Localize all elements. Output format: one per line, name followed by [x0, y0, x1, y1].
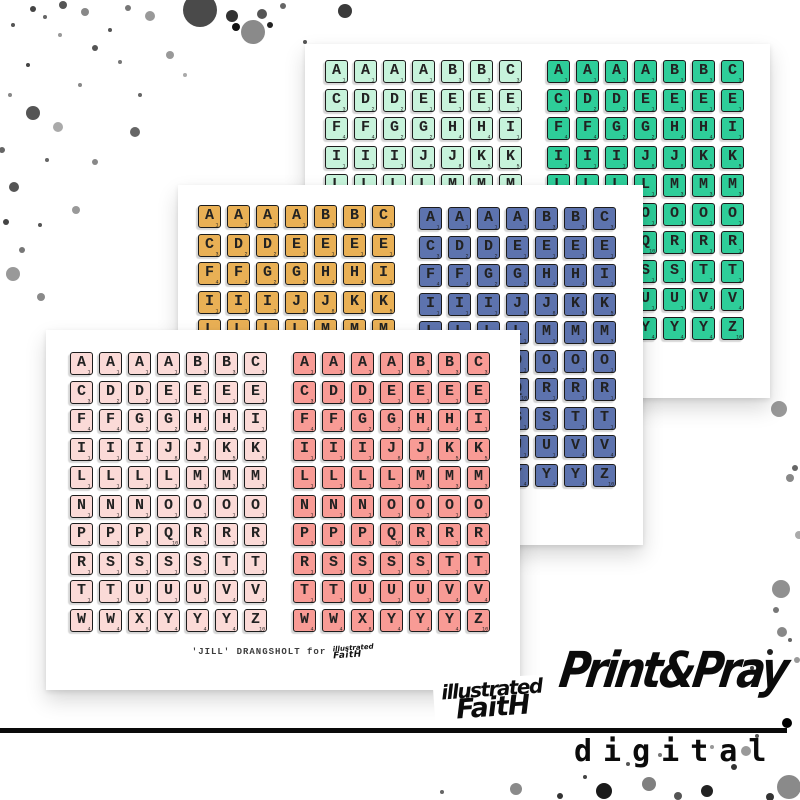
tile-point-value: 4 — [216, 279, 219, 285]
tile-point-value: 4 — [88, 426, 91, 432]
letter-tile-p: P3 — [70, 523, 93, 546]
tile-point-value: 1 — [488, 106, 491, 112]
tile-point-value: 1 — [204, 597, 207, 603]
letter-tile-v: V4 — [564, 435, 587, 458]
letter-tile-s: S1 — [409, 552, 432, 575]
letter-tile-k: K5 — [499, 146, 522, 169]
ink-splatter-dot — [642, 777, 656, 791]
tile-point-value: 1 — [739, 134, 742, 140]
tile-point-value: 1 — [245, 222, 248, 228]
letter-tile-t: T1 — [564, 407, 587, 430]
tile-point-value: 1 — [524, 452, 527, 458]
tile-point-value: 3 — [456, 483, 459, 489]
tile-point-value: 1 — [117, 597, 120, 603]
tile-point-value: 1 — [88, 569, 91, 575]
tile-point-value: 1 — [553, 367, 556, 373]
tile-point-value: 1 — [652, 77, 655, 83]
tile-point-value: 2 — [398, 426, 401, 432]
ink-splatter-dot — [510, 783, 522, 795]
tile-point-value: 8 — [332, 308, 335, 314]
letter-tile-j: J8 — [535, 293, 558, 316]
letter-tile-c: C3 — [419, 236, 442, 259]
letter-tile-c: C3 — [721, 60, 744, 83]
letter-tile-i: I1 — [293, 438, 316, 461]
tile-point-value: 1 — [274, 308, 277, 314]
letter-tile-y: Y4 — [409, 609, 432, 632]
tile-point-value: 1 — [311, 483, 314, 489]
ink-splatter-dot — [19, 247, 25, 253]
tile-point-value: 1 — [372, 77, 375, 83]
tile-point-value: 1 — [175, 483, 178, 489]
tile-point-value: 1 — [117, 455, 120, 461]
tile-point-value: 3 — [517, 77, 520, 83]
tile-point-value: 3 — [311, 398, 314, 404]
tile-point-value: 3 — [146, 540, 149, 546]
tile-point-value: 3 — [739, 191, 742, 197]
letter-tile-i: I1 — [322, 438, 345, 461]
tile-point-value: 3 — [262, 483, 265, 489]
tile-point-value: 1 — [582, 395, 585, 401]
letter-tile-y: Y4 — [535, 464, 558, 487]
tile-point-value: 8 — [427, 455, 430, 461]
tile-point-value: 1 — [175, 512, 178, 518]
tile-point-value: 10 — [395, 540, 401, 546]
letter-tile-r: R1 — [70, 552, 93, 575]
ink-splatter-dot — [38, 223, 42, 227]
letter-tile-m: M3 — [692, 174, 715, 197]
letter-tile-v: V4 — [721, 288, 744, 311]
ink-splatter-dot — [792, 465, 798, 471]
letter-tile-q: Q10 — [380, 523, 403, 546]
tile-point-value: 1 — [485, 512, 488, 518]
letter-tile-n: N1 — [322, 495, 345, 518]
tile-point-value: 1 — [611, 395, 614, 401]
tile-point-value: 1 — [117, 369, 120, 375]
tile-point-value: 4 — [175, 626, 178, 632]
tile-point-value: 1 — [524, 424, 527, 430]
ink-splatter-dot — [766, 793, 774, 800]
tile-point-value: 8 — [430, 163, 433, 169]
illustrated-faith-mini-logo: illustrated FaitH — [333, 645, 375, 661]
ink-splatter-dot — [241, 20, 265, 44]
tile-point-value: 1 — [495, 224, 498, 230]
tile-point-value: 1 — [652, 191, 655, 197]
tile-point-value: 1 — [398, 512, 401, 518]
letter-tile-e: E1 — [535, 236, 558, 259]
tile-point-value: 1 — [710, 277, 713, 283]
tile-point-value: 10 — [736, 334, 742, 340]
letter-tile-a: A1 — [448, 207, 471, 230]
letter-tile-e: E1 — [663, 89, 686, 112]
letter-tile-h: H4 — [409, 409, 432, 432]
tile-point-value: 3 — [204, 369, 207, 375]
tile-point-value: 3 — [582, 224, 585, 230]
letter-tile-o: O1 — [438, 495, 461, 518]
tile-point-value: 10 — [172, 540, 178, 546]
letter-tile-f: F4 — [547, 117, 570, 140]
tile-point-value: 8 — [524, 310, 527, 316]
tile-point-value: 1 — [88, 597, 91, 603]
tile-point-value: 4 — [553, 481, 556, 487]
tile-point-value: 1 — [427, 398, 430, 404]
letter-tile-e: E1 — [244, 381, 267, 404]
letter-tile-o: O1 — [692, 203, 715, 226]
ink-splatter-dot — [338, 4, 352, 18]
tile-point-value: 10 — [608, 481, 614, 487]
tile-point-value: 1 — [466, 224, 469, 230]
letter-tile-e: E1 — [441, 89, 464, 112]
letter-tile-e: E1 — [692, 89, 715, 112]
tile-point-value: 3 — [427, 369, 430, 375]
letter-tile-r: R1 — [692, 231, 715, 254]
letter-tile-d: D2 — [448, 236, 471, 259]
letter-tile-i: I1 — [198, 291, 221, 314]
letter-tile-k: K5 — [244, 438, 267, 461]
ink-splatter-dot — [596, 783, 612, 799]
tile-point-value: 1 — [582, 367, 585, 373]
tile-point-value: 4 — [553, 281, 556, 287]
ink-splatter-dot — [557, 793, 563, 799]
ink-splatter-dot — [53, 122, 63, 132]
ink-splatter-dot — [440, 790, 444, 794]
letter-tile-p: P3 — [99, 523, 122, 546]
letter-tile-c: C3 — [325, 89, 348, 112]
letter-tile-f: F4 — [293, 409, 316, 432]
ink-splatter-dot — [78, 83, 82, 87]
letter-tile-a: A1 — [412, 60, 435, 83]
tile-point-value: 1 — [565, 77, 568, 83]
tile-point-value: 1 — [340, 597, 343, 603]
letter-tile-u: U1 — [535, 435, 558, 458]
tile-point-value: 8 — [652, 163, 655, 169]
tile-point-value: 1 — [262, 398, 265, 404]
tile-point-value: 1 — [146, 483, 149, 489]
letter-tile-e: E1 — [314, 234, 337, 257]
tile-point-value: 1 — [216, 222, 219, 228]
tile-point-value: 1 — [710, 248, 713, 254]
tile-point-value: 3 — [361, 222, 364, 228]
letter-tile-i: I1 — [605, 146, 628, 169]
tile-point-value: 3 — [611, 224, 614, 230]
letter-tile-s: S1 — [535, 407, 558, 430]
tile-point-value: 4 — [456, 597, 459, 603]
tile-point-value: 1 — [369, 512, 372, 518]
letter-tile-b: B3 — [343, 205, 366, 228]
letter-tile-y: Y4 — [380, 609, 403, 632]
letter-tile-h: H4 — [314, 262, 337, 285]
tile-point-value: 5 — [611, 310, 614, 316]
letter-tile-i: I1 — [70, 438, 93, 461]
tile-point-value: 4 — [340, 426, 343, 432]
letter-tile-c: C3 — [244, 352, 267, 375]
letter-tile-d: D2 — [383, 89, 406, 112]
letter-tile-i: I1 — [244, 409, 267, 432]
tile-point-value: 1 — [611, 367, 614, 373]
letter-tile-c: C3 — [372, 205, 395, 228]
tile-point-value: 1 — [652, 277, 655, 283]
ink-splatter-dot — [786, 474, 794, 482]
letter-tile-t: T1 — [99, 580, 122, 603]
letter-tile-s: S1 — [663, 260, 686, 283]
tile-point-value: 4 — [710, 305, 713, 311]
letter-tile-g: G2 — [128, 409, 151, 432]
tile-point-value: 1 — [369, 455, 372, 461]
tile-point-value: 1 — [146, 597, 149, 603]
letter-tile-c: C3 — [70, 381, 93, 404]
tile-point-value: 1 — [146, 512, 149, 518]
letter-tile-h: H4 — [186, 409, 209, 432]
tile-point-value: 3 — [710, 77, 713, 83]
letter-tile-d: D2 — [354, 89, 377, 112]
tile-point-value: 4 — [204, 626, 207, 632]
letter-tile-d: D2 — [128, 381, 151, 404]
tile-point-value: 4 — [311, 426, 314, 432]
tile-point-value: 4 — [710, 134, 713, 140]
letter-tile-g: G2 — [256, 262, 279, 285]
tile-point-value: 4 — [262, 597, 265, 603]
letter-tile-h: H4 — [692, 117, 715, 140]
letter-tile-j: J8 — [634, 146, 657, 169]
letter-tile-v: V4 — [438, 580, 461, 603]
tile-point-value: 1 — [553, 253, 556, 259]
ink-splatter-dot — [773, 607, 779, 613]
letter-tile-j: J8 — [663, 146, 686, 169]
letter-tile-e: E1 — [157, 381, 180, 404]
tile-point-value: 1 — [466, 310, 469, 316]
tile-point-value: 1 — [582, 424, 585, 430]
ink-splatter-dot — [183, 73, 187, 77]
letter-tile-a: A1 — [380, 352, 403, 375]
tile-point-value: 4 — [233, 626, 236, 632]
letter-tile-f: F4 — [322, 409, 345, 432]
letter-tile-o: O1 — [535, 350, 558, 373]
tile-point-value: 2 — [623, 134, 626, 140]
letter-tile-a: A1 — [605, 60, 628, 83]
tile-point-value: 3 — [681, 191, 684, 197]
tile-point-value: 1 — [710, 220, 713, 226]
letter-tile-m: M3 — [186, 466, 209, 489]
tile-point-value: 10 — [259, 626, 265, 632]
letter-tile-p: P3 — [128, 523, 151, 546]
tile-point-value: 2 — [466, 253, 469, 259]
letter-tile-d: D2 — [576, 89, 599, 112]
letter-tile-y: Y4 — [157, 609, 180, 632]
ink-splatter-dot — [232, 23, 240, 31]
letter-tile-i: I1 — [576, 146, 599, 169]
tile-point-value: 2 — [369, 426, 372, 432]
letter-tile-i: I1 — [593, 264, 616, 287]
letter-tile-s: S1 — [157, 552, 180, 575]
tile-point-value: 1 — [652, 305, 655, 311]
letter-tile-n: N1 — [128, 495, 151, 518]
tile-point-value: 4 — [88, 626, 91, 632]
letter-tile-i: I1 — [256, 291, 279, 314]
letter-tile-g: G2 — [157, 409, 180, 432]
tile-point-value: 1 — [311, 369, 314, 375]
tile-point-value: 5 — [262, 455, 265, 461]
letter-tile-t: T1 — [593, 407, 616, 430]
letter-tile-l: L1 — [99, 466, 122, 489]
tile-point-value: 1 — [427, 512, 430, 518]
letter-tile-r: R1 — [535, 378, 558, 401]
tile-point-value: 4 — [245, 279, 248, 285]
tile-point-value: 1 — [88, 512, 91, 518]
tile-point-value: 1 — [485, 398, 488, 404]
tile-point-value: 3 — [488, 77, 491, 83]
tile-point-value: 1 — [681, 106, 684, 112]
tile-point-value: 1 — [710, 106, 713, 112]
ink-splatter-dot — [777, 775, 800, 799]
tile-point-value: 1 — [146, 369, 149, 375]
ink-splatter-dot — [125, 5, 131, 11]
letter-tile-r: R1 — [438, 523, 461, 546]
tile-point-value: 1 — [369, 483, 372, 489]
tile-point-value: 1 — [274, 222, 277, 228]
letter-tile-g: G2 — [477, 264, 500, 287]
tile-point-value: 1 — [175, 597, 178, 603]
tile-point-value: 4 — [398, 626, 401, 632]
ink-splatter-dot — [0, 147, 5, 153]
letter-tile-i: I1 — [383, 146, 406, 169]
tile-point-value: 5 — [233, 455, 236, 461]
letter-tile-c: C3 — [467, 352, 490, 375]
letter-tile-o: O1 — [215, 495, 238, 518]
tile-point-value: 1 — [681, 305, 684, 311]
letter-tile-j: J8 — [157, 438, 180, 461]
tile-point-value: 1 — [117, 569, 120, 575]
letter-tile-t: T1 — [215, 552, 238, 575]
tile-point-value: 4 — [582, 281, 585, 287]
tile-point-value: 1 — [524, 367, 527, 373]
tile-point-value: 1 — [343, 77, 346, 83]
tile-point-value: 3 — [340, 540, 343, 546]
letter-tile-d: D2 — [605, 89, 628, 112]
letter-tile-f: F4 — [70, 409, 93, 432]
letter-tile-l: L1 — [351, 466, 374, 489]
letter-tile-t: T1 — [293, 580, 316, 603]
letter-tile-d: D2 — [99, 381, 122, 404]
tile-point-value: 1 — [681, 248, 684, 254]
letter-tile-p: P3 — [322, 523, 345, 546]
tile-point-value: 1 — [233, 540, 236, 546]
letter-tile-r: R1 — [244, 523, 267, 546]
tile-point-value: 4 — [488, 134, 491, 140]
tile-point-value: 1 — [459, 106, 462, 112]
letter-tile-j: J8 — [285, 291, 308, 314]
tile-point-value: 1 — [398, 483, 401, 489]
ink-splatter-dot — [81, 8, 89, 16]
letter-tile-r: R1 — [721, 231, 744, 254]
ink-splatter-dot — [771, 401, 787, 417]
tile-point-value: 1 — [233, 398, 236, 404]
ink-splatter-dot — [145, 11, 155, 21]
ink-splatter-dot — [6, 267, 20, 281]
tile-point-value: 1 — [311, 597, 314, 603]
tile-point-value: 3 — [611, 338, 614, 344]
letter-tile-m: M3 — [244, 466, 267, 489]
ink-splatter-dot — [30, 6, 36, 12]
letter-tile-a: A1 — [383, 60, 406, 83]
letter-tile-a: A1 — [354, 60, 377, 83]
tile-point-value: 1 — [582, 253, 585, 259]
tile-point-value: 2 — [369, 398, 372, 404]
tile-point-value: 8 — [398, 455, 401, 461]
letter-tile-u: U1 — [380, 580, 403, 603]
tile-point-value: 8 — [175, 455, 178, 461]
tile-point-value: 1 — [146, 569, 149, 575]
tile-point-value: 4 — [594, 134, 597, 140]
tile-point-value: 1 — [427, 597, 430, 603]
tile-point-value: 1 — [427, 569, 430, 575]
tile-point-value: 8 — [369, 626, 372, 632]
letter-tile-c: C3 — [198, 234, 221, 257]
tile-point-value: 4 — [466, 281, 469, 287]
letter-tile-a: A1 — [419, 207, 442, 230]
tile-point-value: 3 — [459, 77, 462, 83]
tile-point-value: 1 — [343, 163, 346, 169]
tile-point-value: 1 — [262, 426, 265, 432]
tile-point-value: 2 — [146, 398, 149, 404]
tile-point-value: 5 — [710, 163, 713, 169]
letter-tile-s: S1 — [186, 552, 209, 575]
ink-splatter-dot — [267, 22, 273, 28]
letter-tile-m: M3 — [215, 466, 238, 489]
tile-point-value: 1 — [332, 251, 335, 257]
tile-point-value: 3 — [582, 338, 585, 344]
letter-tile-u: U1 — [663, 288, 686, 311]
tile-point-value: 1 — [553, 395, 556, 401]
tile-point-value: 8 — [146, 626, 149, 632]
tile-point-value: 3 — [553, 224, 556, 230]
letter-tile-b: B3 — [692, 60, 715, 83]
letter-tile-e: E1 — [467, 381, 490, 404]
letter-tile-y: Y4 — [215, 609, 238, 632]
letter-tile-f: F4 — [354, 117, 377, 140]
letter-tile-d: D2 — [227, 234, 250, 257]
ink-splatter-dot — [58, 33, 62, 37]
tile-point-value: 4 — [361, 279, 364, 285]
tile-point-value: 8 — [553, 310, 556, 316]
letter-tile-t: T1 — [70, 580, 93, 603]
letter-tile-i: I1 — [227, 291, 250, 314]
tile-point-value: 3 — [485, 483, 488, 489]
letter-tile-b: B3 — [535, 207, 558, 230]
tile-grid-light-pink: A1A1A1A1B3B3C3C3D2D2E1E1E1E1F4F4G2G2H4H4… — [70, 352, 267, 632]
letter-tile-e: E1 — [499, 89, 522, 112]
letter-tile-e: E1 — [506, 236, 529, 259]
tile-point-value: 1 — [262, 540, 265, 546]
letter-tile-v: V4 — [467, 580, 490, 603]
letter-tile-c: C3 — [547, 89, 570, 112]
tile-point-value: 4 — [710, 334, 713, 340]
tile-point-value: 4 — [485, 597, 488, 603]
letter-tile-m: M3 — [467, 466, 490, 489]
tile-point-value: 1 — [369, 597, 372, 603]
tile-point-value: 4 — [427, 626, 430, 632]
tile-point-value: 1 — [233, 569, 236, 575]
letter-tile-g: G2 — [506, 264, 529, 287]
letter-tile-v: V4 — [593, 435, 616, 458]
letter-tile-v: V4 — [692, 288, 715, 311]
tile-point-value: 1 — [427, 540, 430, 546]
ink-splatter-dot — [257, 9, 267, 19]
letter-tile-i: I1 — [419, 293, 442, 316]
illustrated-faith-logo: illustrated FaitH — [433, 674, 552, 728]
tile-point-value: 5 — [485, 455, 488, 461]
tile-point-value: 1 — [233, 512, 236, 518]
letter-tile-e: E1 — [564, 236, 587, 259]
letter-tile-m: M3 — [564, 321, 587, 344]
